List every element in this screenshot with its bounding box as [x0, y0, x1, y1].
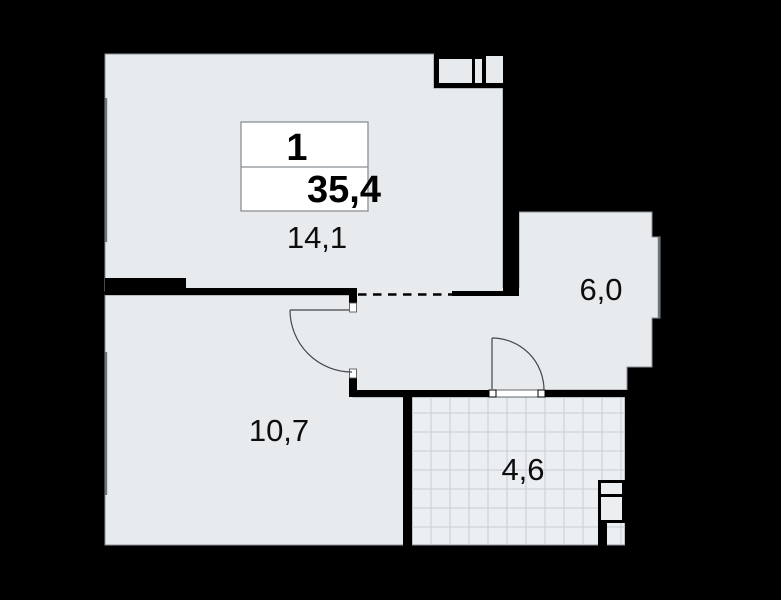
bathroom-area-label: 4,6 [501, 452, 544, 487]
vent-shaft-duct [475, 59, 482, 83]
vent-shaft-duct [486, 56, 503, 83]
vent-shaft [434, 54, 505, 88]
bedroom-area-label: 10,7 [249, 413, 309, 448]
interior-wall [545, 390, 632, 397]
interior-wall [625, 390, 640, 560]
hallway-floor [350, 288, 520, 397]
vent-shaft-duct [439, 59, 472, 83]
door-jamb [350, 369, 357, 378]
door-jamb [538, 390, 545, 397]
interior-wall [503, 54, 519, 296]
door-jamb [489, 390, 496, 397]
rooms-count-label: 1 [286, 127, 307, 169]
interior-wall [349, 295, 357, 303]
interior-wall [403, 397, 412, 548]
interior-wall [350, 390, 489, 397]
door-jamb [350, 303, 357, 312]
living-room-area-label: 14,1 [287, 220, 347, 255]
bathroom-fixture-stub [598, 521, 607, 547]
kitchen-area-label: 6,0 [579, 272, 622, 307]
total-area-label: 35,4 [307, 169, 381, 211]
info-card: 1 35,4 [241, 122, 381, 211]
interior-wall [105, 278, 186, 295]
floor-plan: 1 35,4 14,1 6,0 10,7 4,6 [0, 0, 781, 600]
door-threshold [489, 390, 545, 397]
floor-plan-svg: 1 35,4 14,1 6,0 10,7 4,6 [0, 0, 781, 600]
interior-wall [186, 288, 357, 295]
interior-wall [452, 291, 503, 296]
bathroom-fixture-box [600, 482, 624, 522]
